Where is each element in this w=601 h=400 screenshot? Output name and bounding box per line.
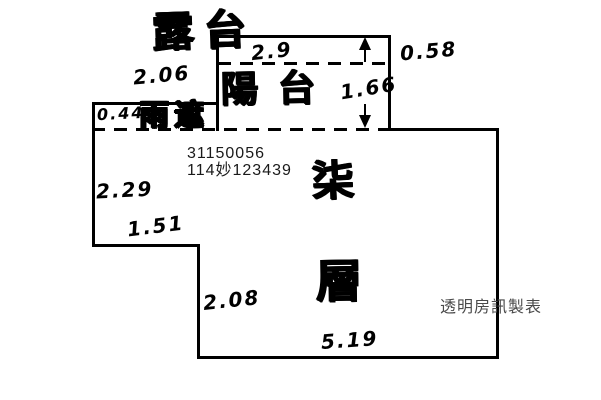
main-right-wall (496, 128, 499, 359)
dim-canopy-top-width: 2.06 (132, 63, 191, 88)
dim-left-step-width: 1.51 (126, 213, 185, 240)
arrow-down-icon (359, 115, 371, 128)
floor-label-seven: 柒 (311, 159, 354, 202)
rain-canopy-label: 雨遮 (139, 100, 209, 129)
dim-left-side-upper: 2.29 (96, 179, 154, 202)
main-top-wall (388, 128, 499, 131)
main-left-wall (92, 102, 95, 247)
balcony-floor-dashed-line (92, 128, 388, 131)
dim-right-step-height: 2.08 (202, 287, 261, 313)
credit-label: 透明房訊製表 (440, 299, 542, 317)
main-bottom-wall (197, 356, 499, 359)
step-vertical-wall (197, 244, 200, 359)
floor-label-storey: 層 (316, 258, 363, 305)
terrace-label: 露台 (151, 8, 256, 54)
balcony-label: 陽台 (221, 69, 336, 108)
arrow-up-shaft (364, 48, 366, 62)
dim-bottom-width: 5.19 (320, 328, 379, 352)
building-number: 31150056 (187, 145, 265, 163)
registry-number: 114妙123439 (187, 162, 292, 180)
dim-terrace-top-width: 2.9 (250, 39, 293, 63)
dim-terrace-depth: 0.58 (399, 39, 458, 64)
step-horizontal-wall (92, 244, 200, 247)
dim-canopy-depth: 0.44 (97, 105, 145, 123)
floor-plan-canvas: 露台 陽台 雨遮 柒 層 2.9 0.58 2.06 0.44 1.66 2.2… (0, 0, 601, 400)
terrace-balcony-dashed-line (218, 62, 388, 65)
